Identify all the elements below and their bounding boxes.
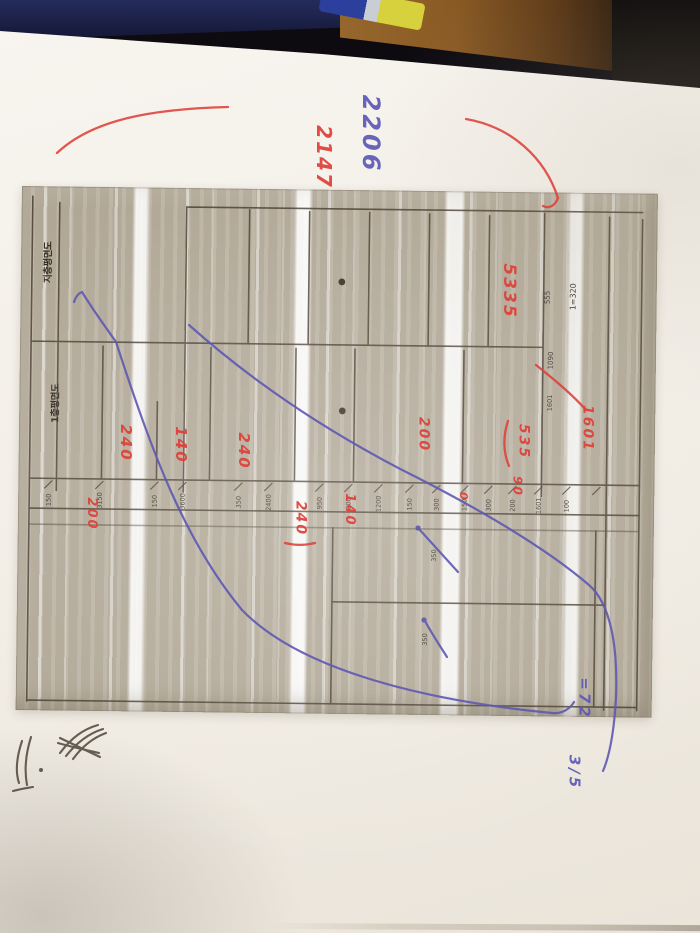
plan-title-lower: 1층평면도 <box>46 371 63 435</box>
plan-title-upper: 지층평면도 <box>39 230 56 294</box>
dim-value: 150 <box>150 488 159 514</box>
red-dim-535: 535 <box>516 420 533 464</box>
printed-555: 555 <box>542 279 552 315</box>
photocopy-sheet: 지층평면도 1층평면도 1=320 555 1090 1601 350 350 … <box>16 186 658 718</box>
printed-1601: 1601 <box>545 385 554 421</box>
dim-value: 950 <box>314 490 323 516</box>
dim-value: 1601 <box>533 493 542 519</box>
dim-value: 150 <box>404 491 413 517</box>
plan-dots <box>337 278 347 414</box>
dimension-band-top <box>29 478 639 485</box>
red-note-5335: 5335 <box>499 259 519 323</box>
red-note-2147: 2147 <box>313 122 335 192</box>
dim-value: 1200 <box>373 491 382 517</box>
red-dim-0: 0 <box>457 489 471 505</box>
printed-1090: 1090 <box>546 342 556 378</box>
red-dim-200-left: 200 <box>84 494 100 534</box>
red-room-dim-2: 140 <box>172 421 190 469</box>
red-dim-90: 90 <box>511 474 526 500</box>
blue-bottom-note-lower: 3/5 <box>567 755 584 791</box>
photo-of-annotated-floor-plan: 지층평면도 1층평면도 1=320 555 1090 1601 350 350 … <box>0 0 700 933</box>
scale-note: 1=320 <box>566 275 579 319</box>
red-room-dim-3: 240 <box>235 427 253 475</box>
red-room-dim-1: 240 <box>117 419 135 467</box>
red-dim-200-upper: 200 <box>416 413 433 457</box>
plan-border-left <box>27 196 33 701</box>
dim-value: 3600 <box>177 488 186 514</box>
blue-bottom-note-upper: =72 <box>577 677 594 721</box>
dim-value: 100 <box>561 493 570 519</box>
plan-top-edge <box>187 207 643 213</box>
red-dim-240-lower: 240 <box>293 497 310 541</box>
dim-value: 300 <box>431 492 440 518</box>
dim-value: 2400 <box>263 489 272 515</box>
red-dim-140-lower: 140 <box>342 489 358 531</box>
plan-bottom-edge <box>27 700 637 707</box>
dim-value: 150 <box>44 487 53 513</box>
desk-shadow-area <box>612 0 700 95</box>
blue-note-2206: 2206 <box>359 86 383 182</box>
printed-350-a: 350 <box>429 538 438 574</box>
dimension-band-bottom <box>29 508 639 515</box>
red-dim-1601: 1601 <box>580 403 597 455</box>
dim-value: 350 <box>233 489 242 515</box>
dim-value: 300 <box>483 492 492 518</box>
floor-plan-linework <box>16 186 658 718</box>
printed-350-b: 350 <box>420 621 429 657</box>
